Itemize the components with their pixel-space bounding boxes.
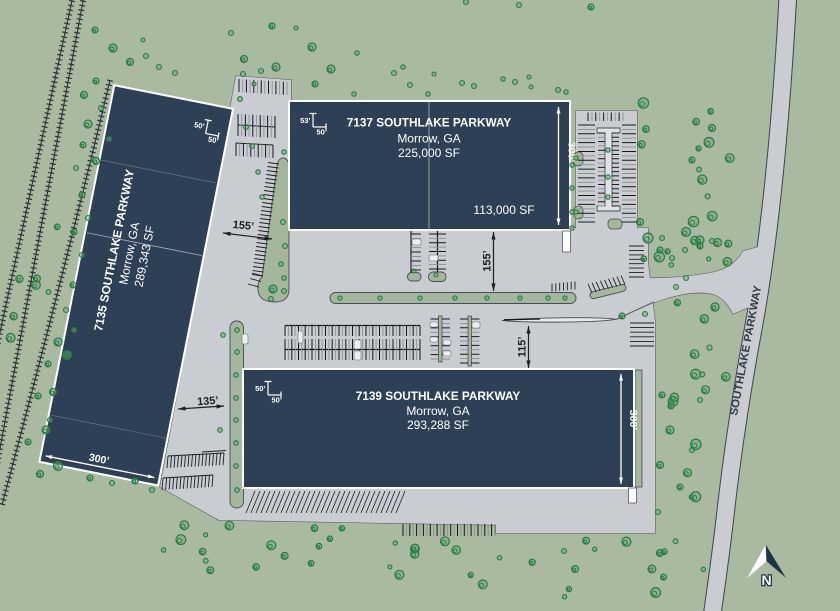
svg-text:7137 SOUTHLAKE PARKWAY: 7137 SOUTHLAKE PARKWAY	[347, 116, 512, 130]
svg-text:293,288 SF: 293,288 SF	[407, 418, 469, 432]
svg-text:225,000 SF: 225,000 SF	[398, 146, 460, 160]
svg-text:50’: 50’	[272, 396, 282, 405]
svg-text:113,000 SF: 113,000 SF	[473, 203, 534, 217]
svg-text:155’: 155’	[232, 219, 255, 233]
svg-text:7139 SOUTHLAKE PARKWAY: 7139 SOUTHLAKE PARKWAY	[356, 389, 521, 403]
svg-text:135’: 135’	[197, 395, 219, 408]
svg-text:155’: 155’	[482, 250, 494, 271]
svg-text:50’: 50’	[255, 384, 265, 393]
svg-text:Morrow, GA: Morrow, GA	[397, 132, 460, 146]
svg-text:53’: 53’	[300, 116, 310, 125]
svg-text:N: N	[761, 572, 771, 588]
svg-text:300’: 300’	[627, 410, 639, 431]
svg-text:115’: 115’	[517, 337, 529, 358]
svg-text:50’: 50’	[317, 128, 327, 137]
svg-text:Morrow, GA: Morrow, GA	[406, 404, 469, 418]
